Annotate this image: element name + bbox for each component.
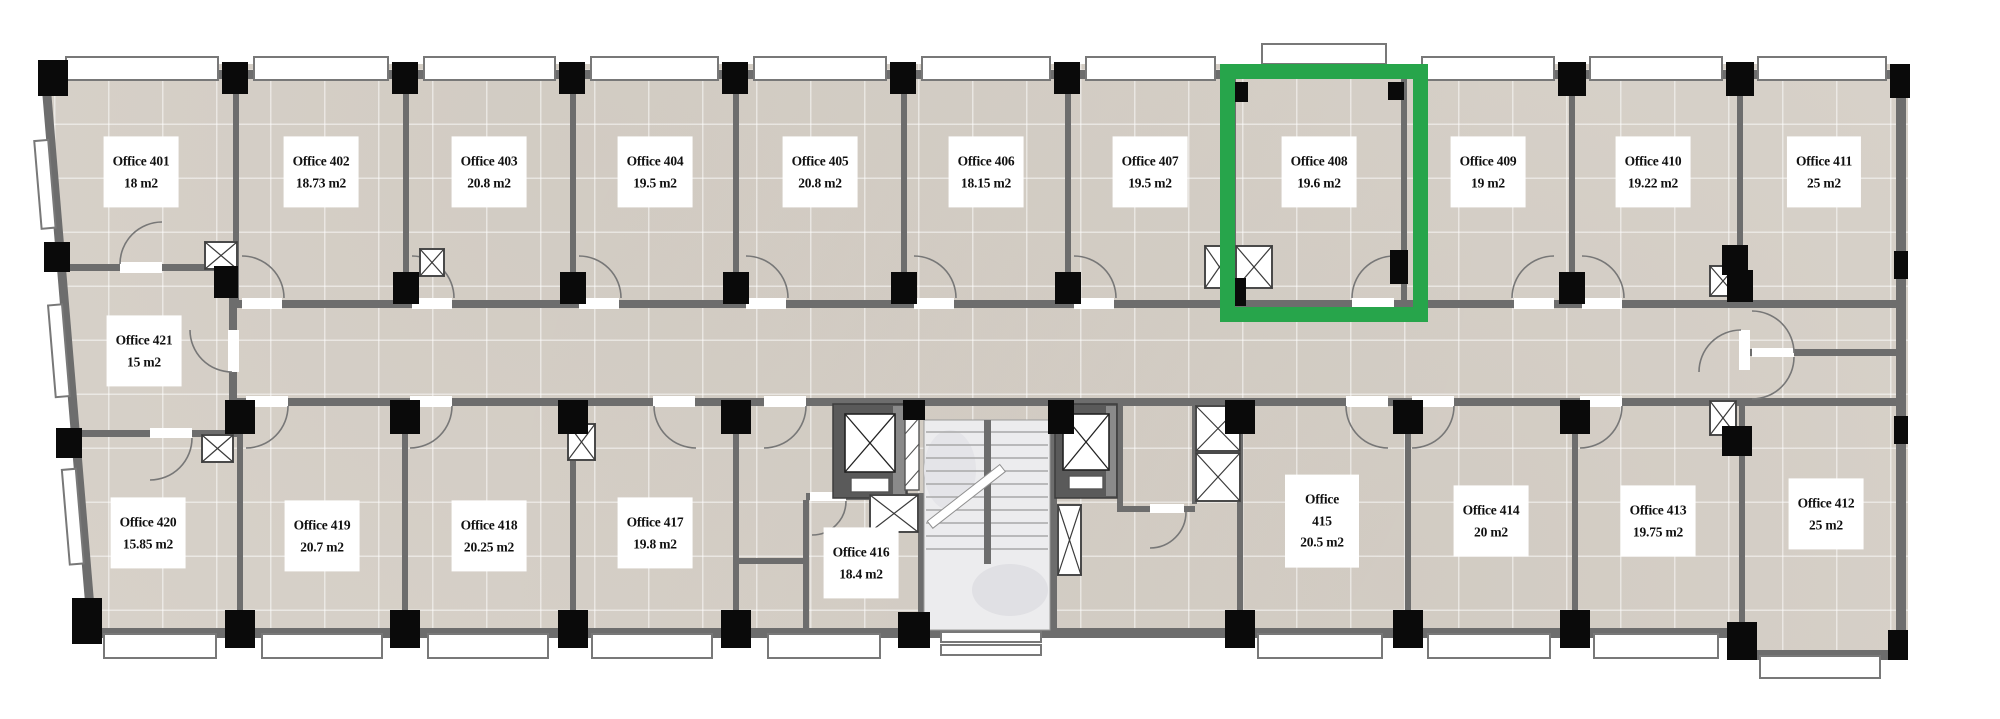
room-label-office-405[interactable]: Office 40520.8 m2 [783,136,858,207]
room-label-office-403[interactable]: Office 40320.8 m2 [452,136,527,207]
room-label-office-410[interactable]: Office 41019.22 m2 [1616,136,1691,207]
room-label-office-407[interactable]: Office 40719.5 m2 [1113,136,1188,207]
staircase [924,420,1050,630]
room-label-office-415[interactable]: Office 41520.5 m2 [1285,475,1359,568]
room-label-office-417[interactable]: Office 41719.8 m2 [618,497,693,568]
room-label-office-409[interactable]: Office 40919 m2 [1451,136,1526,207]
room-label-office-411[interactable]: Office 41125 m2 [1787,136,1861,207]
room-label-office-416[interactable]: Office 41618.4 m2 [824,527,899,598]
selected-room-highlight [1220,64,1428,322]
room-label-office-414[interactable]: Office 41420 m2 [1454,485,1529,556]
room-label-office-418[interactable]: Office 41820.25 m2 [452,500,527,571]
room-label-office-419[interactable]: Office 41920.7 m2 [285,500,360,571]
room-label-office-412[interactable]: Office 41225 m2 [1789,478,1864,549]
room-label-office-420[interactable]: Office 42015.85 m2 [111,497,186,568]
room-label-office-406[interactable]: Office 40618.15 m2 [949,136,1024,207]
left-slanted-wall [28,66,97,642]
room-label-office-404[interactable]: Office 40419.5 m2 [618,136,693,207]
room-label-office-421[interactable]: Office 42115 m2 [107,315,182,386]
floor-plan: Office 40118 m2 Office 40218.73 m2 Offic… [0,0,2000,719]
room-label-office-402[interactable]: Office 40218.73 m2 [284,136,359,207]
room-label-office-413[interactable]: Office 41319.75 m2 [1621,485,1696,556]
elevator-left [833,404,907,498]
room-label-office-401[interactable]: Office 40118 m2 [104,136,179,207]
shaft-hatched [905,414,919,490]
structure-layer [0,0,2000,719]
